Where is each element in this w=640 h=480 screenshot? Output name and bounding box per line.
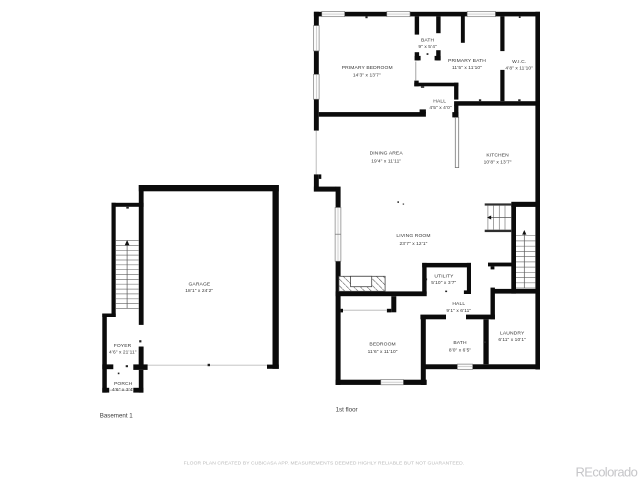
svg-text:PORCH: PORCH — [114, 381, 133, 387]
svg-text:14’3" x 13’7": 14’3" x 13’7" — [353, 72, 381, 78]
svg-text:LIVING ROOM: LIVING ROOM — [396, 233, 430, 239]
svg-text:11’5" x 11’10": 11’5" x 11’10" — [452, 65, 482, 71]
svg-text:GARAGE: GARAGE — [188, 281, 210, 287]
svg-text:4’5" x 4’0": 4’5" x 4’0" — [429, 105, 452, 111]
svg-text:BATH: BATH — [453, 340, 467, 346]
svg-text:4’6" x 21’11": 4’6" x 21’11" — [109, 350, 137, 356]
svg-text:23’7" x 12’1": 23’7" x 12’1" — [400, 241, 428, 247]
svg-text:11’6" x 11’10": 11’6" x 11’10" — [368, 349, 398, 355]
svg-text:10’8" x 13’7": 10’8" x 13’7" — [484, 159, 512, 165]
svg-text:HALL: HALL — [452, 301, 465, 307]
svg-text:6’11" x 10’1": 6’11" x 10’1" — [498, 337, 526, 343]
svg-text:8’0" x 6’5": 8’0" x 6’5" — [449, 347, 472, 353]
svg-text:REcolorado: REcolorado — [576, 465, 638, 480]
svg-text:HALL: HALL — [433, 98, 446, 104]
svg-text:UTILITY: UTILITY — [434, 273, 454, 279]
svg-text:4’8" x 11’10": 4’8" x 11’10" — [505, 66, 533, 72]
svg-text:LAUNDRY: LAUNDRY — [500, 330, 525, 336]
svg-text:FOYER: FOYER — [114, 343, 132, 349]
svg-text:PRIMARY BEDROOM: PRIMARY BEDROOM — [342, 65, 393, 71]
svg-text:5’10" x 3’7": 5’10" x 3’7" — [431, 280, 456, 286]
svg-text:Basement 1: Basement 1 — [100, 413, 134, 420]
svg-text:9" x 5’4": 9" x 5’4" — [418, 44, 437, 50]
svg-text:PRIMARY BATH: PRIMARY BATH — [448, 58, 486, 64]
svg-text:BATH: BATH — [421, 38, 435, 44]
svg-text:KITCHEN: KITCHEN — [486, 153, 509, 159]
svg-text:4’6" x 3’4": 4’6" x 3’4" — [112, 387, 135, 393]
svg-text:18’1" x 24’2": 18’1" x 24’2" — [185, 288, 213, 294]
svg-text:W.I.C.: W.I.C. — [512, 59, 526, 65]
svg-text:DINING AREA: DINING AREA — [370, 151, 404, 157]
svg-text:1st floor: 1st floor — [336, 407, 358, 414]
svg-text:19’4" x 11’11": 19’4" x 11’11" — [371, 158, 401, 164]
svg-text:BEDROOM: BEDROOM — [369, 341, 395, 347]
svg-text:FLOOR PLAN CREATED BY CUBICASA: FLOOR PLAN CREATED BY CUBICASA APP. MEAS… — [184, 461, 465, 467]
svg-text:9’1" x 6’11": 9’1" x 6’11" — [446, 308, 471, 314]
